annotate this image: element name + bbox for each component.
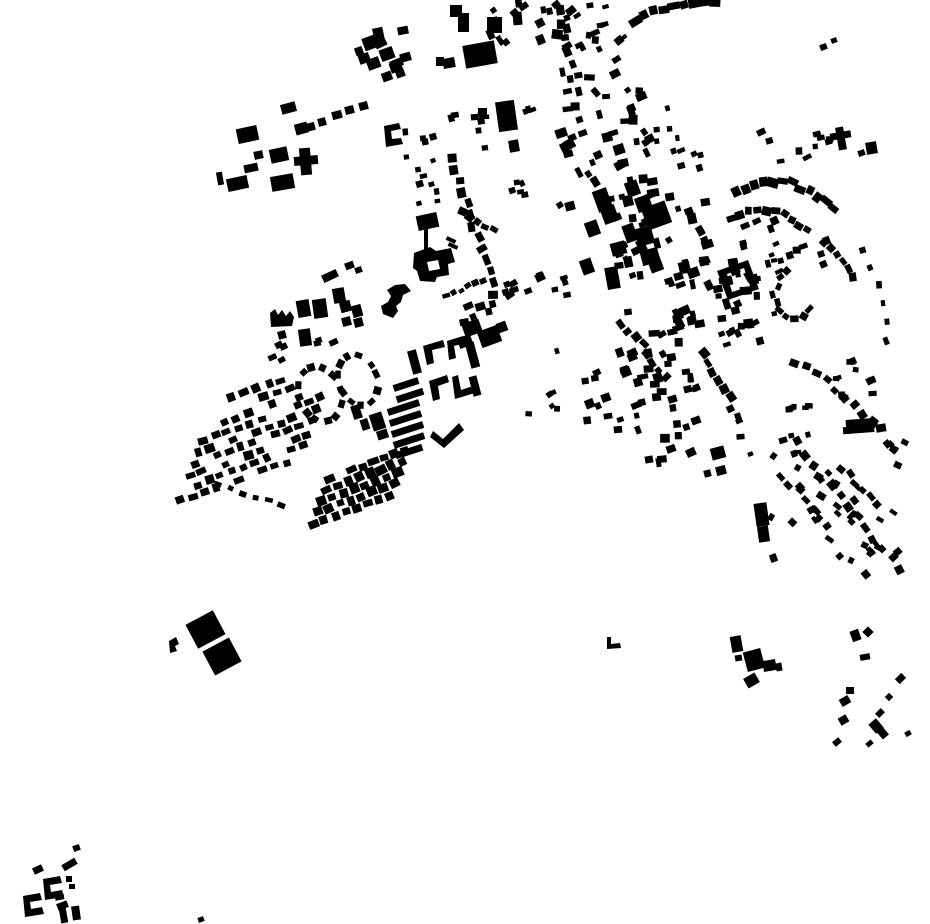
building [419,173,427,179]
building [233,475,245,485]
building [434,188,440,195]
building [650,381,660,388]
building [508,139,520,153]
building [204,474,215,485]
building [578,129,588,137]
building [802,153,812,161]
building [604,266,621,290]
building [253,150,263,160]
building [463,301,475,311]
building [312,506,323,517]
building [666,353,676,362]
building [865,739,874,747]
building [839,695,852,707]
building [515,0,523,8]
building [450,289,458,297]
building [236,441,245,451]
building [667,1,681,10]
building [280,101,297,115]
building [257,391,269,402]
building [61,858,77,872]
building [816,491,827,502]
building [429,133,438,141]
building [296,299,312,318]
building [471,278,480,287]
building [722,298,732,310]
building [819,260,828,269]
building [487,266,495,275]
building [673,420,681,428]
building [338,399,346,409]
building [584,74,595,81]
building [805,431,811,438]
building [456,187,467,199]
building [824,138,832,145]
building [637,271,644,280]
building [715,465,727,476]
building [270,309,294,327]
building [190,459,200,469]
building [740,222,751,231]
building [664,105,670,112]
building [811,368,822,378]
building [238,490,247,498]
building [203,443,216,454]
building [710,445,727,460]
building [197,436,208,446]
building [286,412,298,423]
building [765,137,773,145]
building [849,629,861,642]
building [341,316,352,327]
building [563,88,573,95]
building [861,569,872,580]
building [399,52,412,63]
building [824,469,832,477]
building [407,349,422,375]
building [265,378,274,388]
building [354,266,363,274]
building [265,497,274,503]
building [609,68,621,80]
building [756,127,767,136]
building [335,370,341,378]
building [843,427,850,434]
building [822,521,832,530]
building [574,72,583,79]
building [743,672,760,688]
building [675,432,682,439]
building [277,356,286,364]
building [456,177,465,185]
building [490,7,498,15]
building [713,375,724,387]
building [344,105,355,115]
building [23,893,44,917]
building [876,516,885,523]
building [596,110,603,120]
building [371,369,380,379]
building [551,286,558,292]
building [551,29,563,40]
building [416,200,423,206]
building [789,358,800,368]
building [434,199,440,204]
building [59,908,68,924]
building [540,6,546,14]
building [450,5,462,17]
building [882,336,889,345]
building [654,138,660,144]
building [740,286,752,295]
building [359,418,370,431]
building [554,406,560,412]
building [584,398,596,410]
building [860,653,871,661]
building [652,237,661,249]
building [318,515,328,525]
building [317,117,327,127]
building [872,500,882,510]
building [446,236,457,244]
building [690,415,701,425]
building [228,435,238,444]
building [848,272,856,282]
building [436,57,444,66]
building [835,552,844,561]
building [479,277,488,285]
building [768,252,775,258]
building [777,159,785,164]
building [769,290,776,299]
building [247,438,256,447]
building [584,170,592,179]
building [675,281,686,289]
building [627,176,634,183]
building [795,147,802,155]
building [353,470,365,483]
building [754,292,760,300]
building [769,452,777,461]
building [270,462,279,470]
building [634,412,640,419]
building [640,127,648,136]
building [615,347,625,358]
building [384,491,395,502]
building [648,5,658,16]
building [639,338,650,349]
building [881,300,886,306]
building [611,55,621,64]
building [404,154,410,159]
building [817,250,825,258]
building [726,404,735,413]
building [775,663,782,672]
building [679,0,689,10]
building [226,392,236,403]
building [525,411,532,417]
building [675,135,680,141]
building [224,447,235,456]
building [690,150,698,157]
building [862,626,873,637]
building [256,446,265,455]
building [353,317,364,328]
building [197,916,204,923]
building [900,438,909,446]
building [589,159,596,167]
building [745,207,752,215]
building [311,403,322,414]
building [323,473,336,484]
building [215,471,224,479]
building [675,205,682,212]
building [683,385,692,394]
building [508,187,516,195]
building [846,687,854,694]
building [72,844,81,852]
building [567,75,574,83]
building [670,147,677,154]
building [653,127,660,133]
building [270,173,295,192]
building [757,525,770,542]
building [342,352,351,362]
building [596,22,605,28]
building [518,179,525,187]
building [474,301,486,311]
building [884,318,890,325]
building [889,508,898,516]
building [669,404,676,412]
building [628,214,636,223]
building [293,400,303,409]
building [303,397,314,406]
building [788,433,794,439]
building [769,215,780,226]
building [687,212,698,224]
building [847,557,855,565]
building [819,43,828,51]
building [267,353,277,362]
building [275,377,286,385]
building [32,864,44,875]
building [327,493,337,502]
building [430,423,464,448]
building [685,447,697,458]
building [782,312,790,320]
building [495,100,518,132]
building [667,394,678,404]
building [236,125,260,144]
building [464,198,473,209]
building [755,336,764,345]
building [624,308,632,315]
building [194,447,203,457]
building [753,502,769,527]
building [624,86,632,93]
building [647,188,660,198]
building [226,175,249,192]
building [602,4,609,10]
building [369,411,387,431]
building [221,460,230,468]
building [853,367,859,373]
building [718,330,726,337]
building [904,730,912,737]
building [351,304,364,318]
building [447,153,457,162]
building [306,363,316,373]
building [243,450,255,461]
building [762,659,777,672]
building [592,36,599,44]
building [602,94,610,100]
building [868,391,877,397]
building [638,398,647,406]
building [771,311,777,317]
building [195,466,207,476]
building [860,522,871,534]
building [783,480,793,490]
building [564,201,576,212]
building [805,403,813,409]
building [331,511,341,522]
building [833,375,842,381]
building [314,391,325,402]
building [844,264,853,274]
building [839,257,848,266]
building [277,419,286,428]
building [169,637,179,653]
building [726,214,737,223]
building [700,198,710,207]
building [489,277,498,288]
building [736,434,744,440]
building [703,279,714,291]
building [793,246,801,253]
building [367,456,380,466]
building [717,315,726,322]
building [830,386,839,395]
building [633,138,639,145]
building [213,451,222,460]
building [839,394,848,400]
building [638,174,648,183]
building [876,281,882,289]
building [270,429,281,438]
building [673,271,684,281]
building [765,259,772,268]
building [659,350,668,359]
building [339,488,350,499]
building [277,330,287,340]
building [665,192,675,201]
building [69,884,75,889]
building [596,45,603,53]
building [234,424,244,432]
building [221,427,231,436]
building [644,455,653,463]
building [367,361,375,369]
building [681,265,688,273]
building [449,165,459,176]
building [298,328,312,347]
building [185,471,196,479]
building [614,262,624,269]
building [589,175,600,187]
building [358,101,369,111]
building [318,363,327,372]
building [283,459,291,467]
building [635,87,643,94]
building [753,206,762,213]
building [730,635,744,653]
building [559,67,566,77]
building [735,654,743,661]
building [695,225,706,237]
building [347,397,356,406]
building [830,37,837,44]
building [709,0,720,7]
building [554,348,560,355]
building [740,183,751,195]
building [563,291,571,298]
building [885,693,893,701]
building [838,714,850,725]
building [332,481,343,490]
building [357,401,364,408]
building [534,17,545,28]
building [769,553,778,563]
building [220,418,229,427]
building [805,185,815,196]
building [675,338,683,347]
building [286,445,296,453]
building [293,422,304,430]
building [480,223,489,231]
building [442,292,451,298]
building [239,463,248,472]
building [634,425,642,434]
building [320,485,332,496]
building [489,300,497,308]
building-footprint-map [0,0,930,924]
building [865,141,878,155]
building [336,499,345,507]
building [430,158,436,164]
building [556,201,564,209]
building [488,291,498,299]
building [866,491,876,501]
building [378,46,395,62]
building [243,163,258,174]
building [594,402,602,410]
building [749,179,760,191]
building [849,399,860,410]
building [875,708,885,718]
building [703,358,712,368]
building [269,146,290,163]
building [415,166,421,172]
building [335,359,345,370]
building [464,282,472,290]
building [785,404,794,412]
building [804,304,814,314]
building [645,249,664,273]
building [812,144,818,150]
building [575,86,583,96]
